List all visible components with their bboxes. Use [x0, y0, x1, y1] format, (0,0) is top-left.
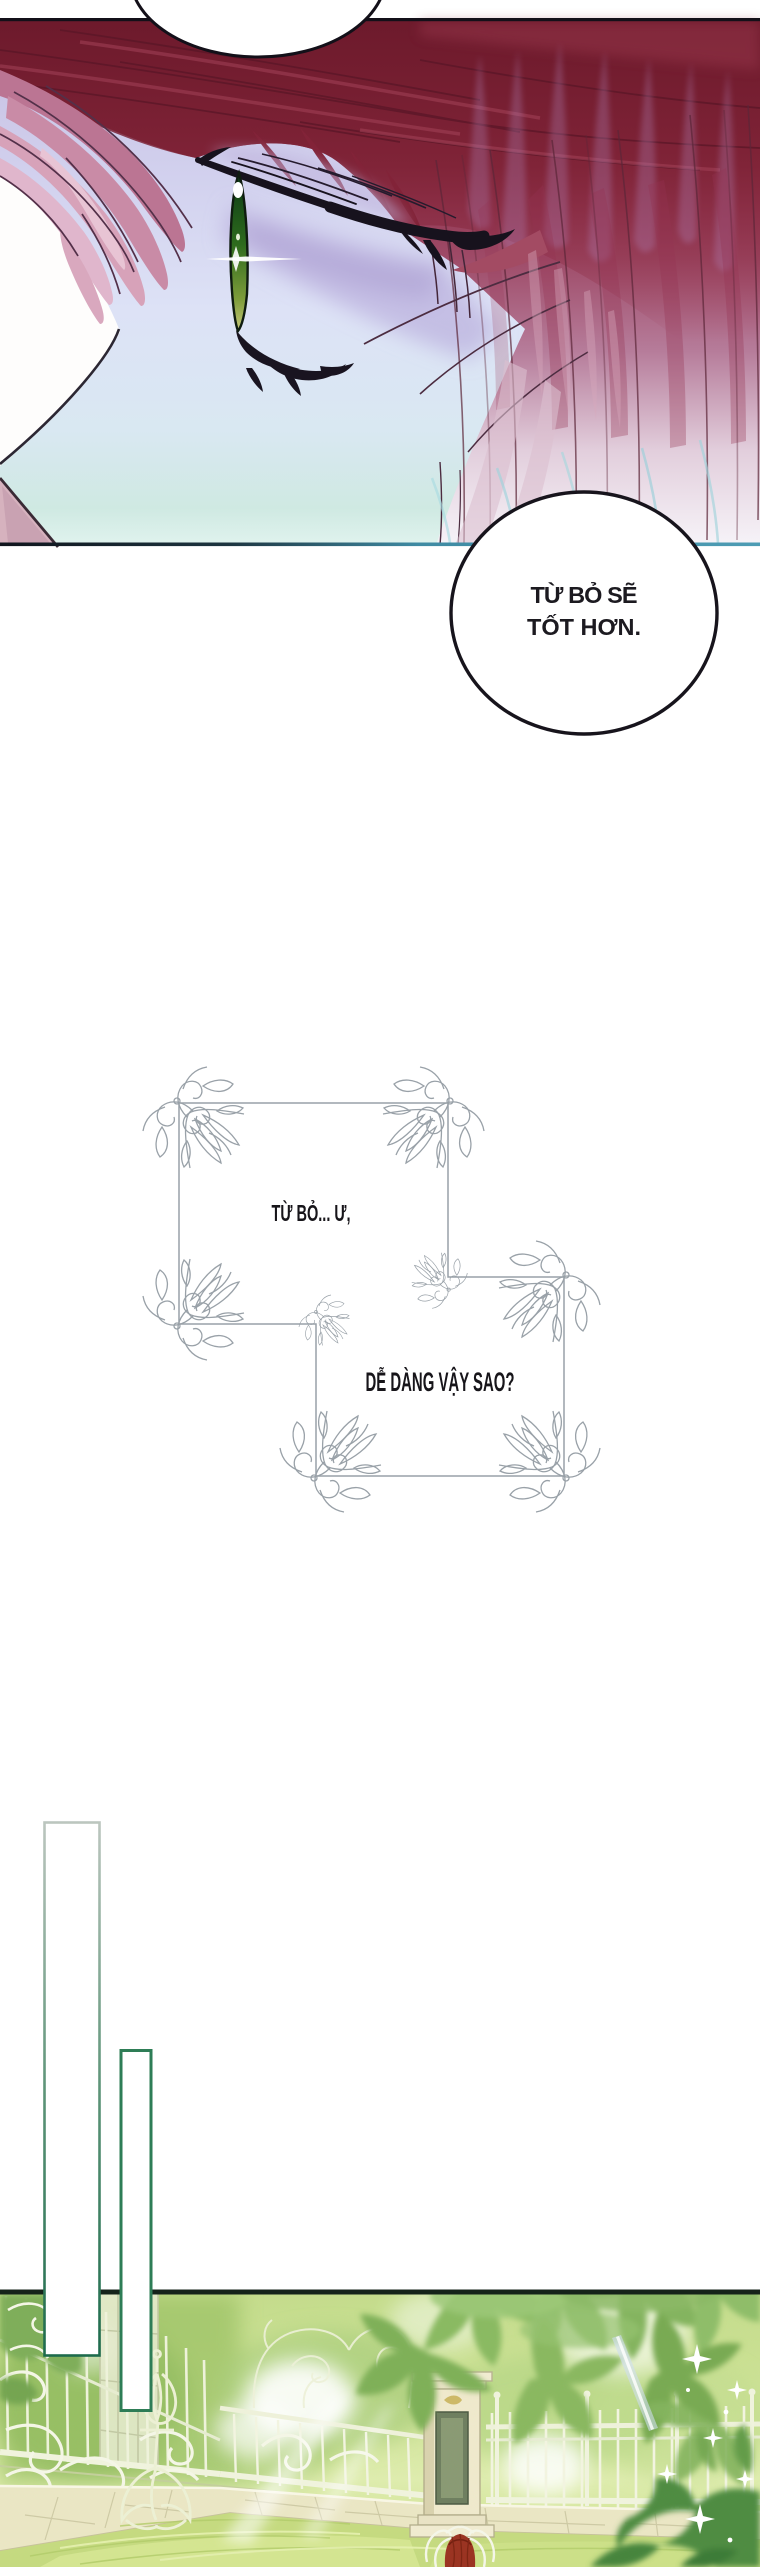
- svg-text:TỐT HƠN.: TỐT HƠN.: [527, 613, 641, 640]
- svg-text:TỪ BỎ... Ư,: TỪ BỎ... Ư,: [272, 1198, 351, 1226]
- svg-text:DỄ DÀNG VẬY SAO?: DỄ DÀNG VẬY SAO?: [366, 1366, 515, 1397]
- svg-text:TỪ BỎ SẼ: TỪ BỎ SẼ: [531, 580, 638, 608]
